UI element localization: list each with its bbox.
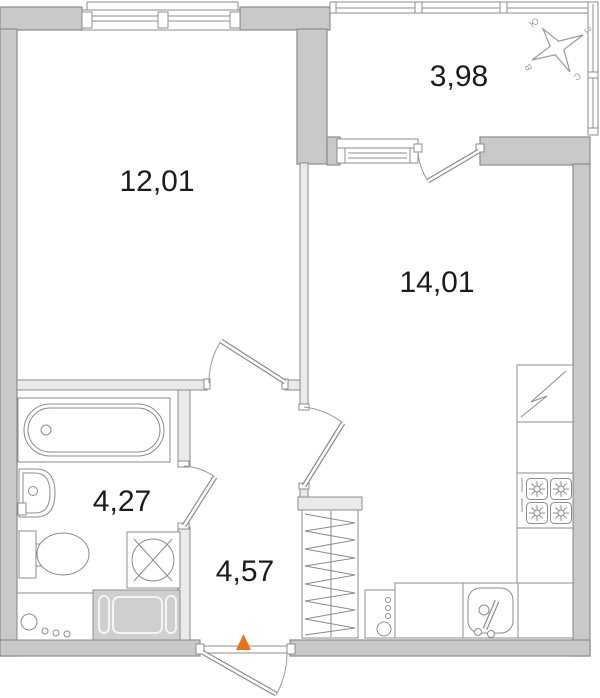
floor-plan-drawing: Ю З В С 12,01 3,98 14,01 4,27 4,57 bbox=[0, 0, 600, 698]
bathtub-icon bbox=[18, 398, 170, 462]
floor-plan: Ю З В С 12,01 3,98 14,01 4,27 4,57 bbox=[0, 0, 600, 698]
hallway-area-label: 4,57 bbox=[216, 555, 274, 588]
kitchen-sink-icon bbox=[463, 583, 518, 638]
vent-block bbox=[93, 590, 180, 640]
laundry-counter-icon bbox=[17, 593, 93, 640]
kitchen-counter-corner bbox=[517, 583, 573, 638]
balcony-area-label: 3,98 bbox=[430, 60, 488, 93]
window-balcony-kitchen bbox=[337, 139, 418, 163]
washbasin-icon bbox=[18, 469, 55, 517]
living-room-area-label: 12,01 bbox=[119, 165, 194, 198]
washing-machine-icon bbox=[127, 532, 180, 588]
kitchen-living-area-label: 14,01 bbox=[399, 266, 474, 299]
toilet-icon bbox=[19, 531, 89, 578]
dishwasher-icon bbox=[365, 590, 395, 638]
refrigerator-icon bbox=[517, 365, 573, 422]
stove-icon bbox=[517, 473, 573, 528]
kitchen-counter-1 bbox=[517, 422, 573, 473]
bathroom-area-label: 4,27 bbox=[93, 485, 151, 518]
kitchen-counter-2 bbox=[517, 528, 573, 583]
kitchen-counter-3 bbox=[395, 583, 463, 638]
wardrobe-icon bbox=[302, 510, 358, 638]
window-living-room bbox=[82, 2, 240, 30]
